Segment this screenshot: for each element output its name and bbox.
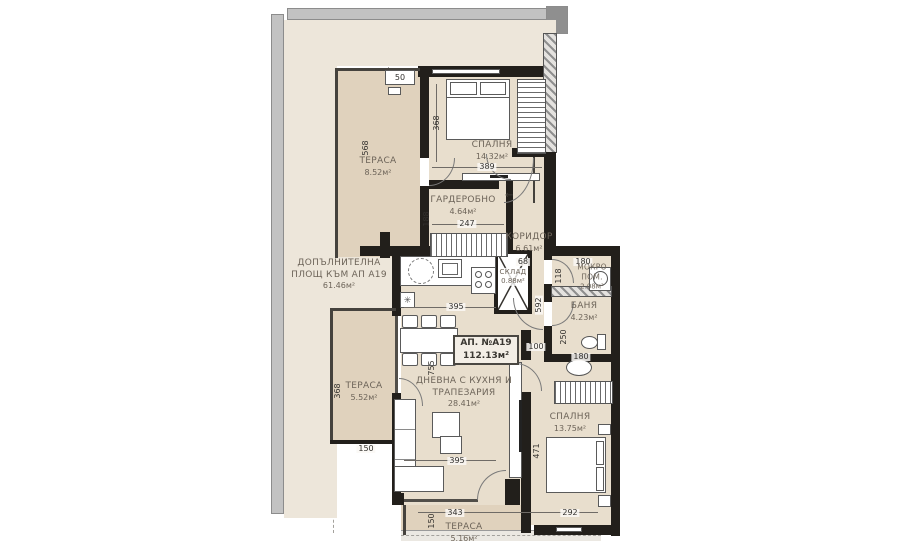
burner-icon <box>475 271 482 278</box>
railing-dashed-line <box>401 535 601 536</box>
wall-segment <box>330 308 333 443</box>
sink-basin <box>442 263 458 275</box>
room-name: ТЕРАСА <box>359 156 396 168</box>
dim-label: 247 <box>457 220 476 228</box>
wall-segment <box>544 246 620 256</box>
shelf-icon: 50 <box>385 70 415 85</box>
wall-segment <box>360 246 402 256</box>
dim-label: 292 <box>560 509 579 517</box>
toilet-tank <box>597 334 606 350</box>
room-name: СКЛАД <box>500 268 527 277</box>
sofa-chaise-icon <box>394 466 444 492</box>
shelf-icon <box>388 87 401 95</box>
dim-label: 68 <box>516 258 530 266</box>
chair-icon <box>440 315 456 328</box>
room-label-storage: СКЛАД 0.88м² <box>500 268 527 286</box>
pillow-icon <box>596 441 604 465</box>
fridge-glyph: ✳ <box>404 296 412 306</box>
site-boundary-band-top <box>287 8 559 20</box>
window-icon <box>395 316 398 393</box>
dim-label: 368 <box>433 115 441 130</box>
dim-label: 250 <box>560 329 568 344</box>
dim-label: 150 <box>428 513 436 528</box>
wall-segment <box>392 493 404 505</box>
room-area: 5.16м² <box>445 534 482 544</box>
dim-label: 180 <box>571 353 590 361</box>
nightstand-icon <box>598 424 611 435</box>
room-name: ТЕРАСА <box>345 381 382 393</box>
wall-segment <box>335 68 338 258</box>
room-name: СПАЛНЯ <box>550 412 591 424</box>
floor-terrace-left <box>332 311 396 441</box>
room-name: БАНЯ <box>570 301 597 313</box>
coffee-table-icon <box>440 436 462 454</box>
burner-icon <box>485 271 492 278</box>
dim-label: 395 <box>447 457 466 465</box>
additional-area-line: ПЛОЩ КЪМ АП А19 <box>291 270 387 282</box>
ceiling-light-icon <box>408 258 434 284</box>
room-label-wet-room: МОКРО ПОМ. 2.08м² <box>577 263 607 292</box>
dim-label: 150 <box>356 445 375 453</box>
entrance-arrow-icon: ← <box>505 190 513 201</box>
room-label-bedroom-top: СПАЛНЯ 14.32м² <box>472 140 513 162</box>
room-name: ТЕРАСА <box>445 522 482 534</box>
fridge-icon: ✳ <box>400 292 415 308</box>
room-label-bedroom-bottom: СПАЛНЯ 13.75м² <box>550 412 591 434</box>
room-name: СПАЛНЯ <box>472 140 513 152</box>
wardrobe-icon <box>517 79 546 154</box>
floor-additional-area-left <box>284 66 337 518</box>
dim-label: 592 <box>535 295 543 314</box>
chair-icon <box>402 315 418 328</box>
room-name: КОРИДОР <box>505 232 552 244</box>
window-icon <box>556 527 582 532</box>
site-boundary-band-left <box>271 14 284 514</box>
dim-label: 755 <box>428 360 436 375</box>
burner-icon <box>485 281 492 288</box>
room-area: 0.88м² <box>500 277 527 286</box>
wall-segment <box>505 479 520 505</box>
apartment-number-box: АП. №А19 112.13м² <box>453 335 519 365</box>
room-name: ТРАПЕЗАРИЯ <box>416 388 512 400</box>
wardrobe-icon <box>430 233 508 257</box>
pillow-icon <box>596 467 604 491</box>
wall-segment <box>420 66 429 158</box>
dim-label: 343 <box>445 509 464 517</box>
floor-plan: 50 ✳ ← <box>0 0 898 556</box>
dim-label: 395 <box>446 303 465 311</box>
room-label-closet: ГАРДЕРОБНО 4.64м² <box>430 195 495 217</box>
room-name: ГАРДЕРОБНО <box>430 195 495 207</box>
room-label-corridor: КОРИДОР 6.61м² <box>505 232 552 254</box>
window-icon <box>404 499 478 502</box>
room-name: МОКРО <box>577 263 607 273</box>
toilet-icon <box>581 336 598 349</box>
room-area: 4.23м² <box>570 313 597 323</box>
room-label-terrace-left: ТЕРАСА 5.52м² <box>345 381 382 403</box>
wall-segment <box>544 284 552 302</box>
room-label-living: ДНЕВНА С КУХНЯ И ТРАПЕЗАРИЯ 28.41м² <box>416 376 512 410</box>
tv-icon <box>519 400 522 452</box>
dining-table-icon <box>400 328 458 353</box>
dim-label: 368 <box>334 383 342 398</box>
stove-icon <box>471 267 496 294</box>
pillow-icon <box>450 82 477 95</box>
dim-label: 100 <box>526 343 545 351</box>
apartment-number: АП. №А19 <box>455 337 517 350</box>
room-area: 4.64м² <box>430 207 495 217</box>
dim-label: 389 <box>477 163 496 171</box>
wall-segment <box>330 308 396 311</box>
room-area: 2.08м² <box>577 282 607 291</box>
burner-icon <box>475 281 482 288</box>
room-area: 8.52м² <box>359 168 396 178</box>
wardrobe-icon <box>554 381 613 404</box>
pillow-icon <box>480 82 506 95</box>
dim-label: 568 <box>362 140 370 155</box>
entrance-arrow-glyph: ← <box>505 190 513 201</box>
wall-segment <box>403 505 406 535</box>
window-icon <box>432 69 500 74</box>
room-label-bathroom: БАНЯ 4.23м² <box>570 301 597 323</box>
room-label-terrace-bottom: ТЕРАСА 5.16м² <box>445 522 482 544</box>
room-area: 5.52м² <box>345 393 382 403</box>
room-name: ДНЕВНА С КУХНЯ И <box>416 376 512 388</box>
room-area: 28.41м² <box>416 399 512 409</box>
chair-icon <box>402 353 418 366</box>
dim-label: 118 <box>555 268 563 283</box>
room-area: 13.75м² <box>550 424 591 434</box>
apartment-total-area: 112.13м² <box>455 350 517 363</box>
washbasin-icon <box>566 359 592 376</box>
coffee-table-icon <box>432 412 460 438</box>
dim-label: 471 <box>533 443 541 458</box>
room-area: 6.61м² <box>505 244 552 254</box>
blanket-line <box>446 97 510 98</box>
floor-additional-area-top <box>284 20 556 66</box>
dim-shelf: 50 <box>395 74 405 82</box>
additional-area-line: ДОПЪЛНИТЕЛНА <box>291 258 387 270</box>
chair-icon <box>421 315 437 328</box>
nightstand-icon <box>598 495 611 507</box>
room-name: ПОМ. <box>577 272 607 282</box>
additional-area-value: 61.46м² <box>291 281 387 291</box>
additional-area-label: ДОПЪЛНИТЕЛНА ПЛОЩ КЪМ АП А19 61.46м² <box>291 258 387 292</box>
room-area: 14.32м² <box>472 152 513 162</box>
room-label-terrace-top: ТЕРАСА 8.52м² <box>359 156 396 178</box>
